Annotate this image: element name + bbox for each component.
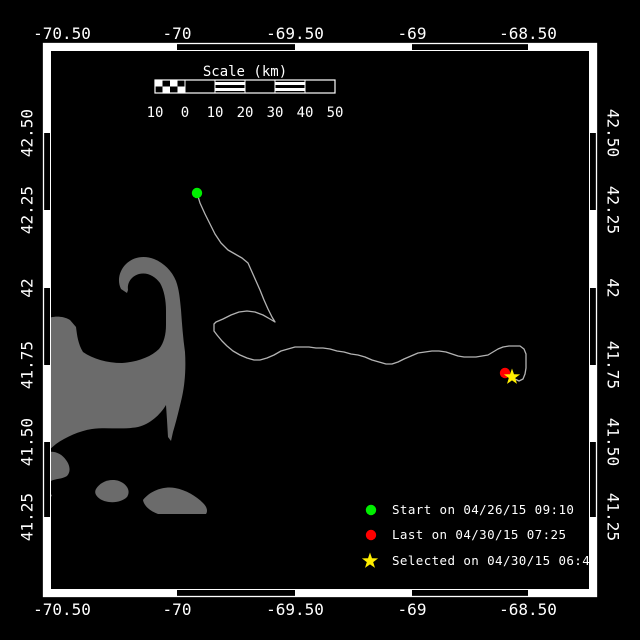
axis-label-left-3: 41.75 xyxy=(18,341,37,389)
axis-label-right-4: 41.50 xyxy=(604,418,623,466)
axis-label-bottom-3: -69 xyxy=(398,600,427,619)
legend-last-icon xyxy=(366,530,376,540)
map-canvas: -70.50 -70 -69.50 -69 -68.50 -70.50 -70 … xyxy=(0,0,640,640)
scale-tick-1: 0 xyxy=(181,105,189,121)
scale-tick-0: 10 xyxy=(147,105,164,121)
axis-label-left-0: 42.50 xyxy=(18,109,37,157)
legend-last-label: Last on 04/30/15 07:25 xyxy=(392,527,566,542)
axis-label-left-2: 42 xyxy=(18,278,37,297)
axis-label-bottom-1: -70 xyxy=(163,600,192,619)
axis-label-bottom-2: -69.50 xyxy=(266,600,324,619)
axis-label-top-0: -70.50 xyxy=(33,24,91,43)
axis-label-right-2: 42 xyxy=(604,278,623,297)
legend-selected-label: Selected on 04/30/15 06:40 xyxy=(392,553,598,568)
scale-tick-2: 10 xyxy=(207,105,224,121)
axis-label-top-2: -69.50 xyxy=(266,24,324,43)
axis-label-right-3: 41.75 xyxy=(604,341,623,389)
axis-label-right-5: 41.25 xyxy=(604,493,623,541)
legend-start-label: Start on 04/26/15 09:10 xyxy=(392,502,574,517)
legend-start-icon xyxy=(366,505,376,515)
axis-label-left-4: 41.50 xyxy=(18,418,37,466)
axis-label-bottom-0: -70.50 xyxy=(33,600,91,619)
axis-label-right-1: 42.25 xyxy=(604,186,623,234)
start-marker[interactable] xyxy=(192,188,202,198)
scale-bar-title: Scale (km) xyxy=(203,64,287,80)
axis-label-bottom-4: -68.50 xyxy=(499,600,557,619)
axis-label-top-4: -68.50 xyxy=(499,24,557,43)
scale-tick-3: 20 xyxy=(237,105,254,121)
axis-label-left-1: 42.25 xyxy=(18,186,37,234)
legend: Start on 04/26/15 09:10 Last on 04/30/15… xyxy=(362,502,598,568)
axis-label-top-1: -70 xyxy=(163,24,192,43)
axis-label-top-3: -69 xyxy=(398,24,427,43)
scale-tick-6: 50 xyxy=(327,105,344,121)
scale-tick-4: 30 xyxy=(267,105,284,121)
axis-label-right-0: 42.50 xyxy=(604,109,623,157)
scale-tick-5: 40 xyxy=(297,105,314,121)
axis-label-left-5: 41.25 xyxy=(18,493,37,541)
map-window: -70.50 -70 -69.50 -69 -68.50 -70.50 -70 … xyxy=(0,0,640,640)
